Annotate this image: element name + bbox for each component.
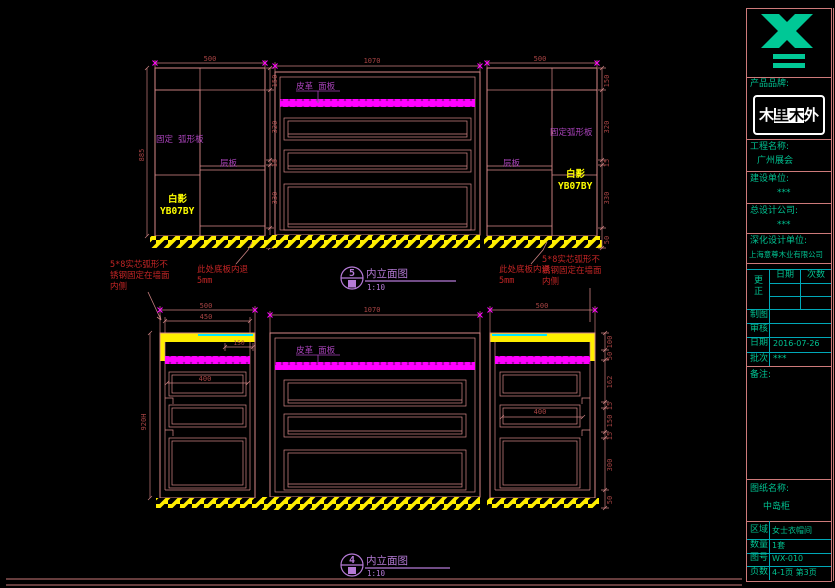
dim-label: 920H (140, 414, 148, 431)
shelf-label: 层板 (220, 158, 238, 169)
sheet-outer-border (833, 8, 834, 581)
date-value: 2016-07-26 (773, 340, 820, 348)
fixed-panel-label: 固定 弧形板 (156, 134, 204, 145)
batch-value: *** (773, 355, 787, 364)
batch-label: 批次 (750, 355, 768, 364)
drawing-no-value: WX-010 (772, 555, 803, 563)
recess-note-mm: 5mm (499, 276, 514, 286)
view-marker-bottom: 4 内立面图 1:10 (341, 554, 450, 578)
steel-note-line: 5*8实芯弧形不 (110, 259, 168, 270)
sheet-name-value: 中岛柜 (763, 503, 790, 512)
checked-by-label: 审核 (750, 325, 768, 334)
deepen-design-label: 深化设计单位: (750, 237, 807, 246)
cad-drawing-sheet: 500 885 150 320 15 330 50 固定 弧形板 层板 白影 Y… (0, 0, 835, 588)
dim-label: 1070 (364, 306, 381, 314)
brand-logo-char: 木 (789, 108, 804, 123)
material-code-label: YB07BY (160, 206, 195, 217)
drawn-by-label: 制图 (750, 311, 768, 320)
cabinet-bottom-left: 500 450 150 400 920H (140, 302, 264, 508)
title-block: 产品品牌: 木 里 木 外 工程名称: 广州展会 建设单位: *** 总设计公司… (746, 8, 832, 582)
brand-logo-char: 里 (774, 108, 789, 123)
view-scale: 1:10 (367, 283, 386, 292)
material-label: 白影 (566, 168, 586, 180)
dim-label: 500 (200, 302, 213, 310)
dim-label: 500 (534, 55, 547, 63)
steel-note-line: 锈钢固定在墙面 (542, 265, 602, 276)
brand-logo: 木 里 木 外 (753, 95, 825, 135)
brand-logo-char: 外 (804, 108, 819, 123)
fixed-panel-label: 固定弧形板 (550, 127, 593, 138)
design-value: *** (777, 221, 791, 230)
dim-label: 50 (603, 236, 611, 244)
material-label: 白影 (168, 193, 188, 205)
dim-label: 15 (603, 159, 611, 167)
view-scale: 1:10 (367, 569, 386, 578)
recess-note: 此处底板内退 (197, 264, 249, 275)
brand-label: 产品品牌: (750, 80, 789, 89)
dim-label: 320 (603, 121, 611, 134)
dim-label: 50 (606, 496, 614, 504)
remarks-label: 备注: (750, 371, 771, 380)
view-marker-top: 5 内立面图 1:10 (341, 267, 456, 292)
qty-value: 1套 (772, 542, 785, 550)
dim-label: 450 (200, 313, 213, 321)
cabinet-bottom-right: 500 400 100 50 162 15 150 15 300 50 (487, 302, 614, 510)
area-label: 区域 (750, 526, 768, 535)
dim-label: 100 (606, 336, 614, 349)
shelf-label: 层板 (503, 158, 521, 169)
builder-label: 建设单位: (750, 175, 789, 184)
project-label: 工程名称: (750, 143, 789, 152)
design-label: 总设计公司: (750, 207, 798, 216)
dim-label: 330 (603, 192, 611, 205)
dim-label: 500 (204, 55, 217, 63)
revision-count-header: 次数 (807, 271, 825, 280)
brand-logo-char: 木 (759, 108, 774, 123)
cabinet-top-left: 500 885 150 320 15 330 50 固定 弧形板 层板 白影 Y… (138, 55, 279, 250)
dim-label: 150 (606, 415, 614, 428)
steel-note-line: 内侧 (110, 281, 127, 292)
dim-label: 150 (233, 340, 245, 347)
view-number: 4 (349, 555, 355, 566)
dim-label: 1070 (364, 57, 381, 65)
page-label: 页数 (750, 568, 768, 577)
page-value: 4-1页 第3页 (772, 569, 817, 577)
steel-note-line: 锈钢固定在墙面 (110, 270, 170, 281)
view-title: 内立面图 (366, 554, 408, 567)
area-value: 女士衣帽间 (772, 527, 812, 535)
dim-label: 400 (199, 375, 212, 383)
cabinet-top-right: 500 150 320 15 330 50 层板 固定弧形板 白影 YB07BY (484, 55, 611, 250)
recess-note-mm: 5mm (197, 276, 212, 286)
dim-label: 400 (534, 408, 547, 416)
dim-label: 15 (606, 432, 614, 440)
dim-label: 162 (606, 376, 614, 389)
sheet-border (6, 579, 742, 585)
revision-label: 更正 (752, 275, 761, 297)
company-logo-icon (757, 14, 821, 72)
dim-label: 15 (606, 402, 614, 410)
dim-label: 300 (606, 459, 614, 472)
cabinet-top-center: 1070 皮革 面板 (266, 57, 482, 248)
dim-label: 50 (606, 352, 614, 360)
dim-label: 150 (603, 75, 611, 88)
view-title: 内立面图 (366, 267, 408, 280)
material-code-label: YB07BY (558, 181, 593, 192)
date-label: 日期 (750, 339, 768, 348)
deepen-design-value: 上海意尊木业有限公司 (749, 251, 823, 258)
steel-note-line: 内侧 (542, 276, 559, 287)
sheet-name-label: 图纸名称: (750, 485, 789, 494)
qty-label: 数量 (750, 541, 768, 550)
drawing-no-label: 图号 (750, 554, 768, 563)
dim-label: 500 (536, 302, 549, 310)
builder-value: *** (777, 189, 791, 198)
dim-label: 885 (138, 149, 146, 162)
project-value: 广州展会 (757, 157, 793, 166)
drawing-canvas: 500 885 150 320 15 330 50 固定 弧形板 层板 白影 Y… (0, 0, 745, 588)
leather-panel-label: 皮革 面板 (296, 345, 336, 356)
cabinet-bottom-center: 1070 皮革 面板 (262, 306, 482, 510)
revision-date-header: 日期 (776, 271, 794, 280)
view-number: 5 (349, 268, 355, 279)
steel-note-line: 5*8实芯弧形不 (542, 254, 600, 265)
leather-panel-label: 皮革 面板 (296, 81, 336, 92)
